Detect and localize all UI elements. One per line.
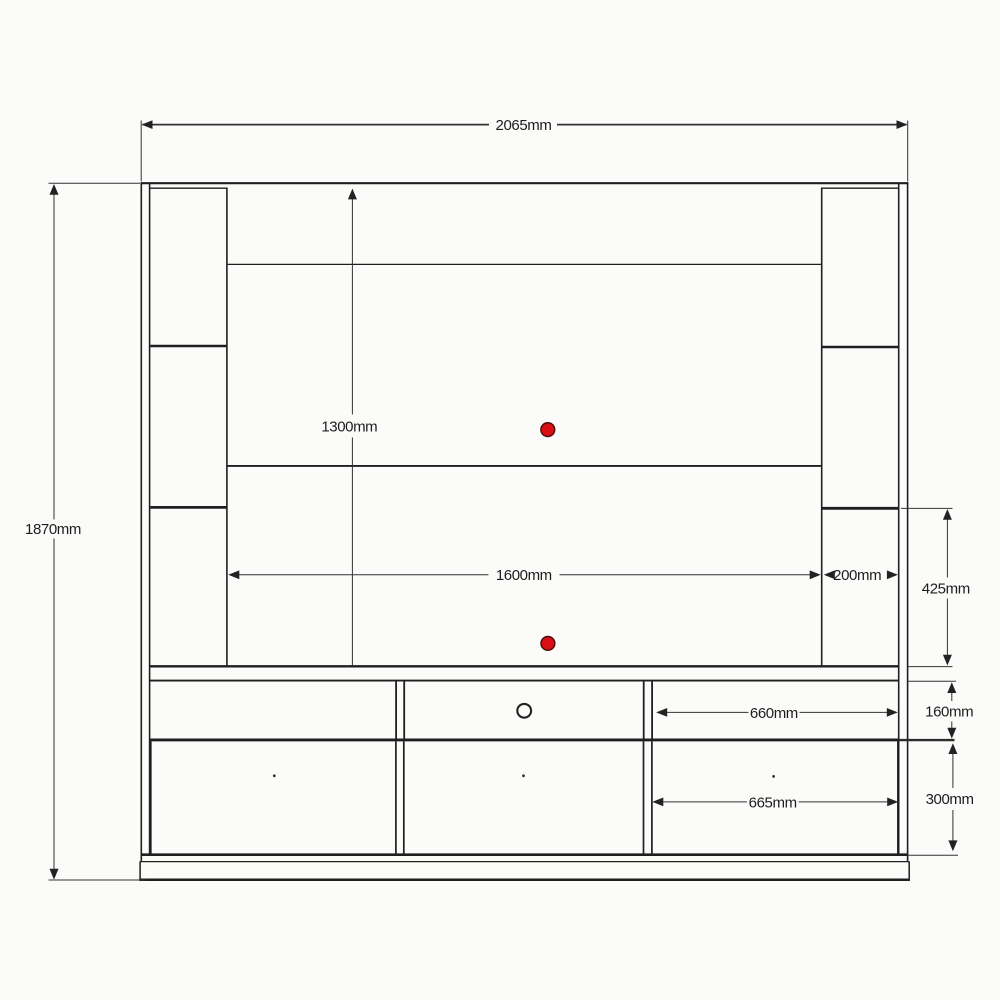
svg-text:300mm: 300mm	[926, 791, 974, 808]
svg-text:425mm: 425mm	[922, 580, 970, 597]
svg-text:200mm: 200mm	[833, 567, 881, 584]
svg-text:665mm: 665mm	[749, 794, 797, 811]
svg-text:2065mm: 2065mm	[496, 117, 552, 134]
svg-text:1870mm: 1870mm	[25, 521, 81, 538]
svg-text:1600mm: 1600mm	[496, 567, 552, 584]
svg-text:160mm: 160mm	[925, 704, 973, 721]
svg-text:1300mm: 1300mm	[321, 418, 377, 435]
svg-text:660mm: 660mm	[750, 705, 798, 722]
